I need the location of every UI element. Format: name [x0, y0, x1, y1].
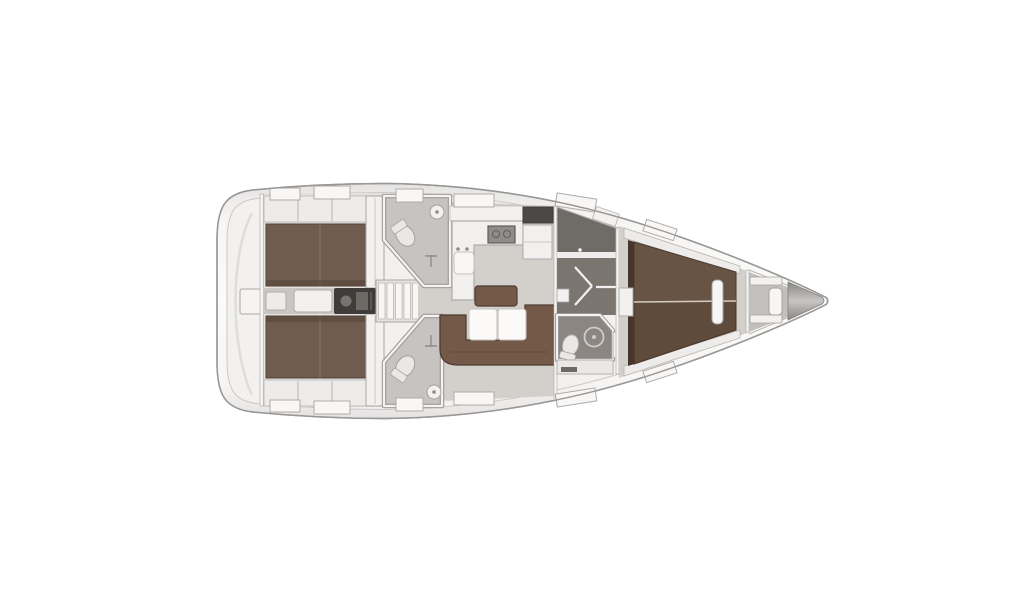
- aft-berth-starboard: [266, 316, 366, 378]
- salon-bench: [475, 286, 517, 306]
- locker-hatch: [769, 288, 782, 315]
- transom-bulkhead: [260, 194, 264, 406]
- shower-drain: [592, 335, 596, 339]
- aft-berth-port-shadow: [266, 280, 366, 286]
- engine-manifold: [356, 292, 368, 310]
- yacht-floor-plan-canvas: Sailing yacht interior deck plan, top vi…: [0, 0, 1024, 600]
- galley-top-lockers: [450, 206, 523, 221]
- deck-hatch: [270, 400, 300, 412]
- faucet-dot: [456, 247, 460, 251]
- aft-berth-starboard-shadow: [266, 316, 366, 322]
- step-tread: [404, 283, 411, 319]
- locker-rung: [750, 315, 782, 323]
- engine-compartment: [263, 288, 376, 314]
- washbasin-drain: [432, 390, 436, 394]
- battery-box: [266, 292, 286, 310]
- engine-pulley: [341, 296, 352, 307]
- step-tread: [387, 283, 394, 319]
- wardrobe-door-knob: [578, 248, 582, 252]
- faucet-dot: [465, 247, 469, 251]
- step-tread: [396, 283, 403, 319]
- galley-sink: [454, 252, 474, 274]
- companionway-steps: [376, 280, 420, 322]
- salon-table-leaf: [469, 309, 497, 340]
- aft-cabin-starboard: [263, 314, 384, 407]
- deck-hatch: [396, 189, 423, 202]
- entry-step: [619, 288, 633, 316]
- mast-step-box: [557, 289, 569, 302]
- deck-hatch: [454, 194, 494, 207]
- aft-cabin-port: [263, 193, 384, 288]
- aft-berth-port: [266, 224, 366, 286]
- refrigerator: [523, 207, 553, 223]
- yacht-floor-plan: Sailing yacht interior deck plan, top vi…: [0, 0, 1024, 600]
- deck-hatch-overhead: [712, 280, 723, 324]
- deck-hatch: [454, 392, 494, 405]
- deck-hatch: [314, 401, 350, 414]
- washbasin-drain: [435, 210, 439, 214]
- forward-cabin: [619, 226, 750, 378]
- step-tread: [379, 283, 386, 319]
- engine-block: [334, 288, 376, 314]
- bow-bulkhead: [746, 270, 749, 332]
- cabinet-seam-dark: [561, 367, 577, 372]
- deck-hatch: [396, 398, 423, 411]
- locker-rung: [750, 277, 782, 285]
- wardrobe-door: [557, 252, 616, 257]
- deck-hatch: [270, 188, 300, 200]
- deck-hatch: [314, 186, 350, 199]
- transom-locker-box: [240, 289, 261, 314]
- generator-box: [294, 290, 332, 312]
- salon-table-leaf: [498, 309, 526, 340]
